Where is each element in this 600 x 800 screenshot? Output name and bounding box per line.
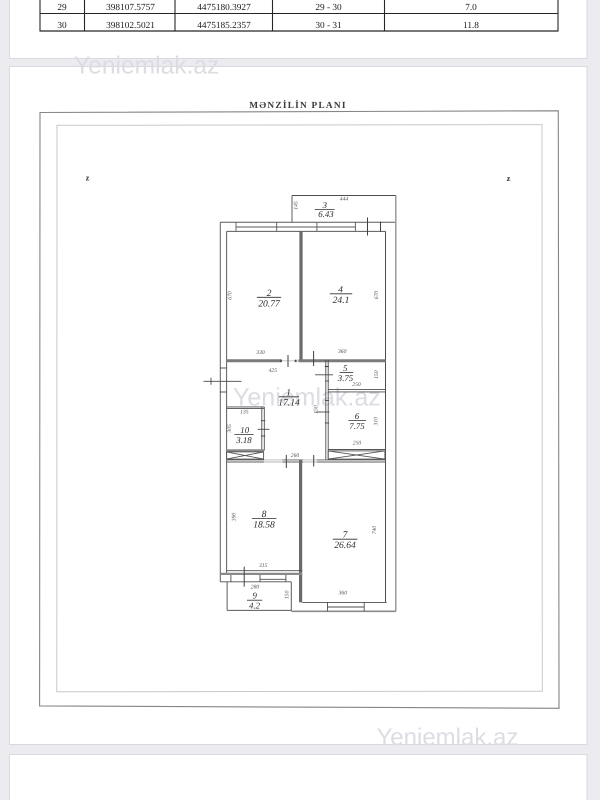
svg-text:398107.5757: 398107.5757	[106, 3, 155, 13]
svg-text:Yeniemlak.az: Yeniemlak.az	[74, 53, 219, 80]
svg-text:29: 29	[57, 3, 67, 13]
svg-text:29 - 30: 29 - 30	[315, 3, 342, 13]
svg-text:6: 6	[355, 411, 360, 421]
svg-text:740: 740	[372, 526, 378, 535]
svg-text:20.77: 20.77	[258, 298, 281, 309]
svg-text:z: z	[507, 173, 511, 183]
svg-text:z: z	[86, 173, 90, 183]
svg-text:18.58: 18.58	[253, 520, 275, 531]
svg-text:425: 425	[269, 368, 278, 374]
svg-text:3.75: 3.75	[337, 373, 354, 383]
svg-text:17.14: 17.14	[278, 398, 300, 409]
svg-text:444: 444	[340, 196, 349, 202]
svg-text:360: 360	[337, 349, 347, 355]
svg-text:250: 250	[352, 382, 361, 388]
svg-text:360: 360	[338, 591, 348, 597]
svg-text:6.43: 6.43	[318, 209, 334, 219]
svg-text:30: 30	[57, 21, 67, 31]
svg-text:150: 150	[374, 370, 380, 379]
svg-text:9: 9	[252, 591, 257, 601]
svg-text:4.2: 4.2	[249, 601, 261, 611]
svg-text:30 - 31: 30 - 31	[315, 21, 342, 31]
svg-text:MƏNZİLİN PLANI: MƏNZİLİN PLANI	[249, 100, 346, 111]
svg-text:150: 150	[314, 405, 320, 414]
svg-text:260: 260	[291, 453, 300, 459]
svg-text:7.0: 7.0	[465, 3, 477, 13]
svg-text:150: 150	[285, 590, 291, 599]
svg-text:250: 250	[353, 440, 362, 446]
svg-text:310: 310	[374, 417, 380, 427]
svg-text:145: 145	[294, 201, 300, 210]
svg-text:315: 315	[258, 563, 268, 569]
svg-text:670: 670	[374, 291, 380, 300]
svg-text:4475180.3927: 4475180.3927	[197, 3, 251, 13]
svg-text:Yeniemlak.az: Yeniemlak.az	[377, 724, 519, 751]
svg-text:670: 670	[228, 291, 234, 300]
svg-text:5: 5	[343, 363, 348, 373]
svg-text:11.8: 11.8	[463, 21, 479, 31]
svg-text:3.18: 3.18	[235, 435, 252, 445]
svg-text:390: 390	[231, 513, 237, 523]
svg-text:305: 305	[227, 424, 233, 434]
svg-text:7.75: 7.75	[349, 421, 365, 431]
svg-text:280: 280	[251, 585, 260, 591]
svg-text:10: 10	[240, 425, 249, 435]
svg-text:330: 330	[255, 350, 265, 356]
svg-text:4475185.2357: 4475185.2357	[197, 21, 251, 31]
svg-text:26.64: 26.64	[334, 540, 356, 551]
svg-text:135: 135	[240, 410, 249, 416]
svg-text:398102.5021: 398102.5021	[106, 21, 155, 31]
svg-text:24.1: 24.1	[333, 295, 350, 306]
